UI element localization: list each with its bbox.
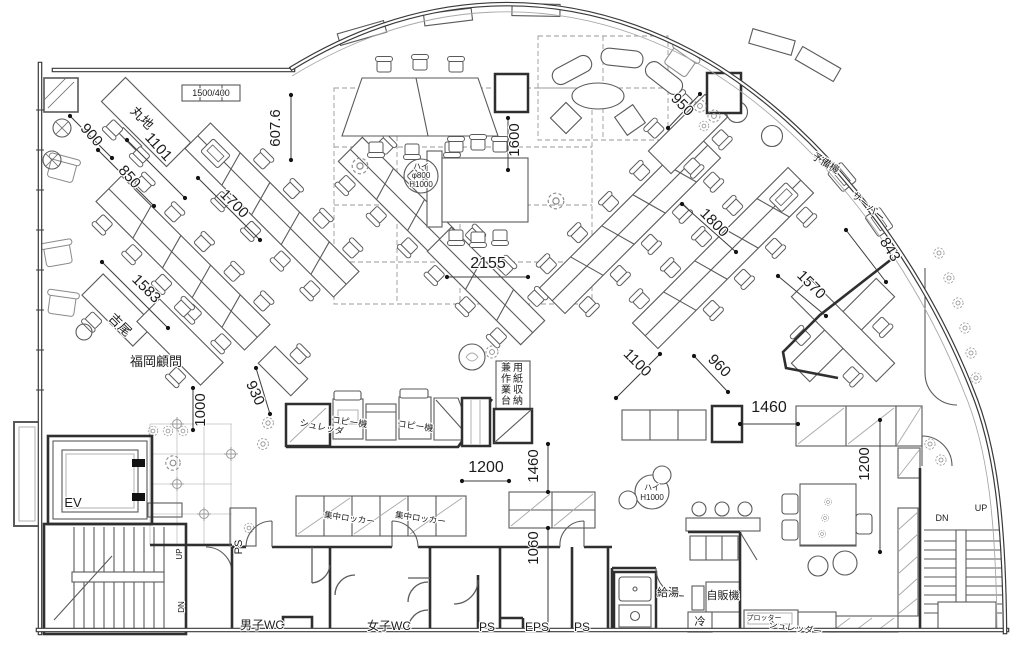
room-ps-2: PS — [574, 620, 590, 634]
note-window-1500-400: 1500/400 — [192, 88, 230, 98]
room-eps: EPS — [525, 620, 549, 634]
dim-1460-lower: 1460 — [525, 449, 542, 482]
whiteboard-1 — [495, 74, 528, 112]
label-high-table-1000-line1: ハイ — [644, 483, 660, 492]
cushion-bench — [622, 406, 742, 442]
dim-1600: 1600 — [506, 123, 523, 156]
corner-column — [44, 78, 78, 137]
dim-843: 843 — [876, 234, 904, 264]
label-hot-water: 給湯 — [657, 585, 679, 599]
label-stairs-up-right: UP — [975, 503, 988, 513]
desk-small-930 — [258, 332, 321, 395]
dim-1060: 1060 — [525, 531, 542, 564]
label-refrigerator: 冷 — [695, 615, 706, 628]
floorplan-svg: 9008501101丸地1500/400607.616009501800予備機サ… — [0, 0, 1024, 667]
label-vending-machine: 自販機 — [707, 588, 740, 602]
stairs-left — [44, 524, 186, 634]
label-stairs-up-left: UP — [175, 548, 184, 559]
hot-water-sink — [614, 572, 656, 630]
desk-maruchi — [88, 77, 191, 180]
left-protrusion — [14, 422, 40, 526]
dim-960: 960 — [704, 351, 734, 381]
label-spare-machine: 予備機 — [810, 150, 842, 177]
room-womens-wc: 女子WC — [367, 618, 411, 633]
left-wall-seating — [40, 151, 92, 340]
stairs-right — [920, 436, 1002, 632]
dim-1460-upper: 1460 — [751, 399, 787, 416]
dim-2155: 2155 — [470, 255, 506, 272]
label-ps-shaft: PS — [233, 540, 245, 555]
wc-block — [232, 547, 612, 632]
room-elevator: EV — [64, 495, 82, 510]
label-high-table-800-line3: H1000 — [409, 180, 433, 189]
dim-1200-lower: 1200 — [468, 459, 504, 476]
label-paper-storage-col-left: 兼作業台 — [501, 361, 511, 407]
label-high-table-800-line2: φ800 — [412, 171, 431, 180]
dim-1200-right: 1200 — [856, 447, 873, 480]
locker-block-hatched — [509, 492, 595, 528]
lounge-area — [549, 41, 782, 146]
label-high-table-1000-line2: H1000 — [640, 493, 664, 502]
dim-930: 930 — [242, 378, 268, 408]
desk-group-label-fukuoka-advisor: 福岡顧問 — [130, 354, 182, 369]
label-paper-storage-col-right: 用紙収納 — [513, 363, 523, 407]
dim-1100: 1100 — [620, 345, 655, 380]
elevator — [48, 436, 152, 524]
floorplan-image: 9008501101丸地1500/400607.616009501800予備機サ… — [0, 0, 1024, 667]
room-ps-1: PS — [479, 620, 495, 634]
dim-1000: 1000 — [192, 393, 209, 426]
grid-room — [148, 417, 238, 545]
arc-plants — [925, 248, 981, 465]
label-stairs-dn-right: DN — [936, 513, 949, 523]
room-mens-wc: 男子WC — [240, 618, 284, 632]
furniture-layer — [40, 4, 981, 632]
label-stairs-dn-left: DN — [177, 601, 186, 613]
dim-900: 900 — [77, 120, 106, 150]
copy-corner — [258, 389, 492, 449]
right-meeting-table — [782, 484, 872, 576]
label-high-table-800-line1: ハイ — [413, 162, 429, 171]
dim-607-6: 607.6 — [267, 109, 284, 147]
